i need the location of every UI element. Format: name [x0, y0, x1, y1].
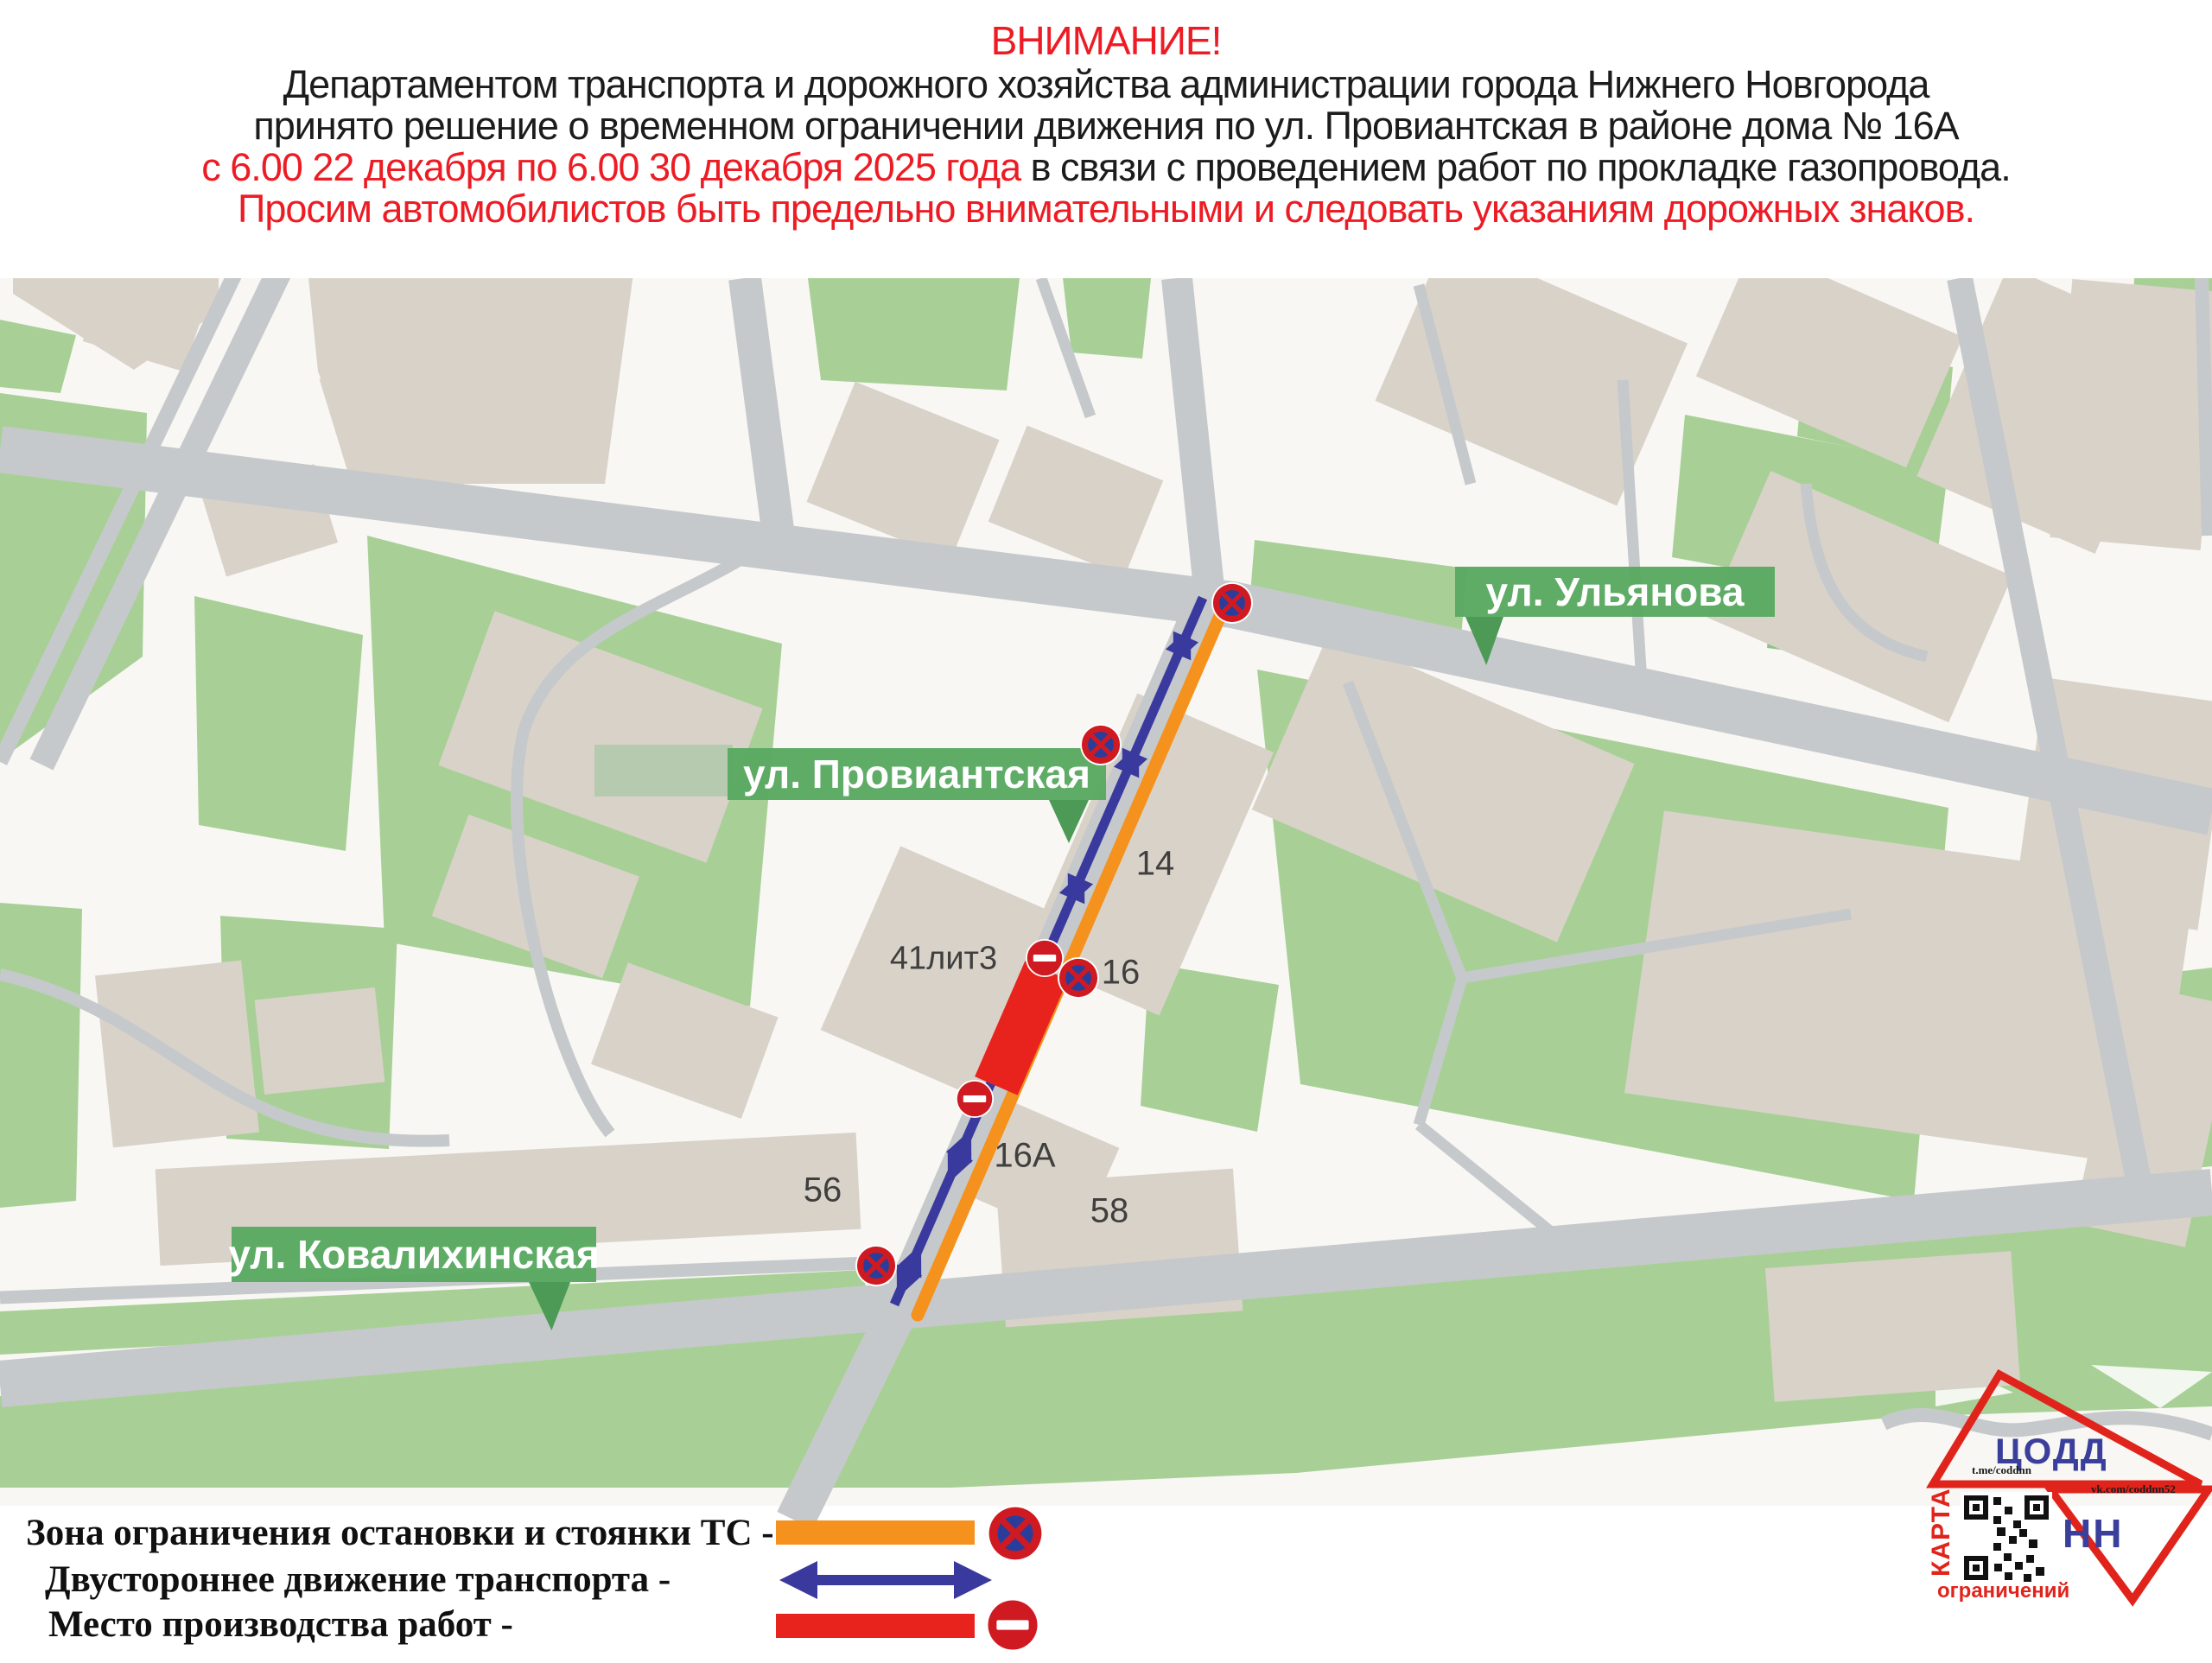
badge-extension	[594, 745, 733, 797]
no-stopping-sign-icon	[1080, 724, 1122, 765]
karta-text: КАРТА	[1927, 1488, 1956, 1577]
building-number-14: 14	[1136, 845, 1175, 884]
street-badge-ulyanova-label: ул. Ульянова	[1486, 568, 1745, 615]
street-badge-ulyanova: ул. Ульянова	[1455, 567, 1775, 617]
qr-code	[1961, 1492, 2052, 1584]
no-stopping-sign-icon	[1058, 957, 1099, 999]
codd-city-text: НН	[2063, 1510, 2123, 1557]
street-badge-proviantskaya: ул. Провиантская	[728, 748, 1106, 800]
street-badge-proviantskaya-label: ул. Провиантская	[743, 751, 1090, 797]
traffic-notice-page: ВНИМАНИЕ! Департаментом транспорта и дор…	[0, 0, 2212, 1663]
park-area	[0, 903, 82, 1208]
building-number-16: 16	[1102, 954, 1141, 993]
building-number-41lit3: 41лит3	[890, 941, 997, 978]
legend-swatch-red	[776, 1614, 975, 1638]
legend-no-stopping-icon	[987, 1505, 1044, 1562]
legend-item-two-way: Двустороннее движение транспорта -	[45, 1558, 671, 1601]
building-block	[2050, 279, 2212, 550]
vk-link-text: vk.com/coddnn52	[2091, 1482, 2176, 1496]
legend-no-entry-icon	[986, 1598, 1039, 1652]
building-number-16a: 16А	[994, 1137, 1055, 1176]
legend-swatch-orange	[776, 1520, 975, 1545]
park-area	[194, 596, 363, 851]
street-badge-kovalikhinskaya-label: ул. Ковалихинская	[228, 1231, 599, 1278]
legend-item-work-site: Место производства работ -	[48, 1603, 513, 1646]
legend-item-no-stopping-zone: Зона ограничения остановки и стоянки ТС …	[26, 1512, 774, 1554]
codd-logo: ЦОДД t.me/coddnn vk.com/coddnn52 НН КАРТ…	[1884, 1356, 2212, 1663]
no-stopping-sign-icon	[855, 1245, 897, 1286]
no-stopping-sign-icon	[1211, 582, 1253, 624]
building-block	[255, 987, 385, 1095]
no-entry-sign-icon	[1026, 939, 1064, 977]
building-number-56: 56	[804, 1171, 842, 1210]
park-area	[1063, 278, 1151, 359]
legend-two-way-arrow-icon	[778, 1555, 994, 1605]
road-minor	[2202, 278, 2209, 536]
ogranicheniy-text: ограничений	[1937, 1579, 2069, 1603]
building-number-58: 58	[1090, 1192, 1129, 1231]
no-entry-sign-icon	[956, 1080, 994, 1118]
map-canvas	[0, 0, 2212, 1663]
park-area	[808, 278, 1020, 390]
telegram-link-text: t.me/coddnn	[1972, 1463, 2031, 1477]
street-badge-kovalikhinskaya: ул. Ковалихинская	[232, 1227, 596, 1282]
